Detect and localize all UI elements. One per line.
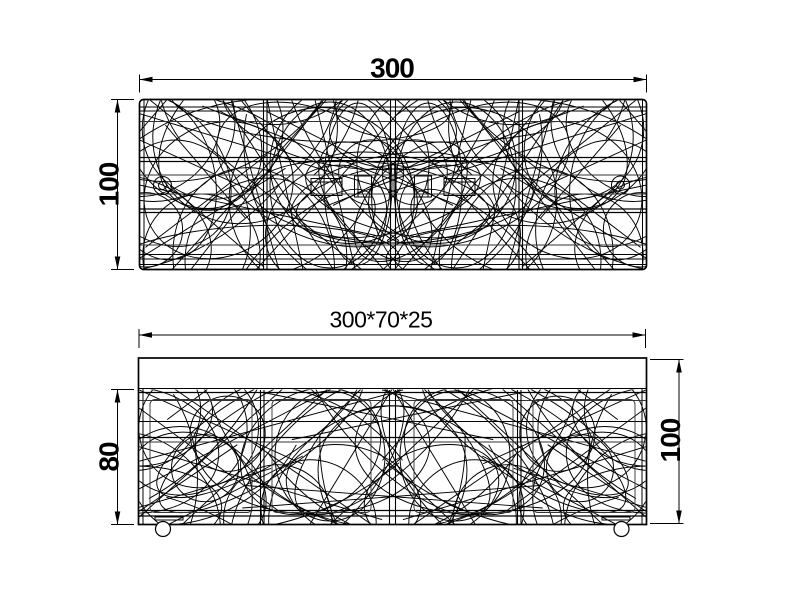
svg-text:100: 100 — [655, 418, 686, 462]
svg-text:100: 100 — [94, 162, 125, 206]
svg-text:300: 300 — [370, 53, 414, 84]
svg-text:80: 80 — [94, 442, 125, 472]
svg-text:300*70*25: 300*70*25 — [330, 307, 433, 333]
